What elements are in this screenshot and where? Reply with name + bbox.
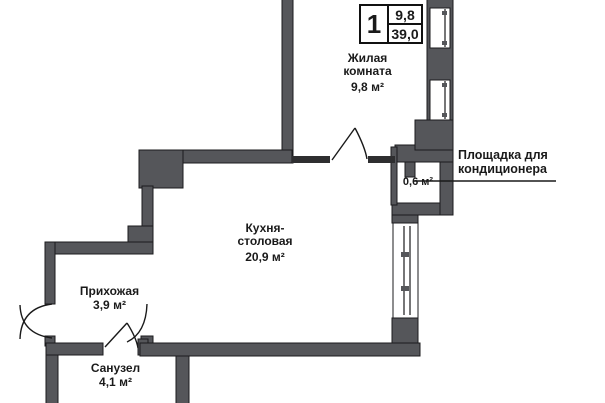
unit-info-badge: 1 9,8 39,0 [359, 4, 423, 44]
badge-total-area: 39,0 [389, 25, 421, 42]
room-label-kitchen: Кухня- столовая 20,9 м² [210, 222, 320, 264]
wall-platform-top-pier [415, 120, 453, 150]
partition-livingroom-right [368, 156, 395, 163]
badge-room-count: 1 [361, 6, 389, 42]
room-name-kitchen: Кухня- столовая [210, 222, 320, 248]
room-name-living: Жилая комната [315, 52, 420, 78]
wall-left-step [128, 226, 153, 243]
wall-livingroom-left [282, 0, 293, 163]
door-leaf-bath [105, 323, 127, 347]
wall-kitchen-left [142, 186, 153, 228]
wall-kitchen-topleft-pier [139, 150, 183, 188]
floor-plan-drawing [0, 0, 605, 403]
wall-bath-top [46, 343, 103, 355]
partition-livingroom-left [292, 156, 330, 163]
room-label-living: Жилая комната 9,8 м² [315, 52, 420, 94]
annotation-platform: Площадка для кондиционера [458, 148, 568, 176]
room-area-hall: 3,9 м² [62, 299, 157, 312]
wall-hall-top [45, 242, 153, 254]
wall-window-bottom-pier [392, 318, 418, 343]
wall-hall-left [45, 242, 55, 304]
door-leaf-livingroom [332, 128, 355, 160]
window-living-1 [430, 8, 450, 48]
room-label-bath: Санузел 4,1 м² [68, 362, 163, 389]
room-name-bath: Санузел [68, 362, 163, 375]
badge-living-area: 9,8 [389, 6, 421, 25]
door-arc-entrance-2 [20, 305, 52, 338]
wall-platform-stub [405, 162, 415, 177]
room-area-bath: 4,1 м² [68, 376, 163, 389]
window-kitchen [393, 223, 418, 318]
window-living-2 [430, 80, 450, 120]
floor-plan-page: 1 9,8 39,0 Жилая комната 9,8 м² Кухня- с… [0, 0, 605, 403]
door-arc-livingroom [355, 128, 367, 159]
room-area-kitchen: 20,9 м² [210, 251, 320, 264]
room-area-living: 9,8 м² [315, 81, 420, 94]
room-name-hall: Прихожая [62, 285, 157, 298]
wall-bath-right [176, 356, 189, 403]
room-label-hall: Прихожая 3,9 м² [62, 285, 157, 312]
wall-kitchen-bottom [140, 343, 420, 356]
room-area-platform: 0,6 м² [392, 176, 444, 188]
